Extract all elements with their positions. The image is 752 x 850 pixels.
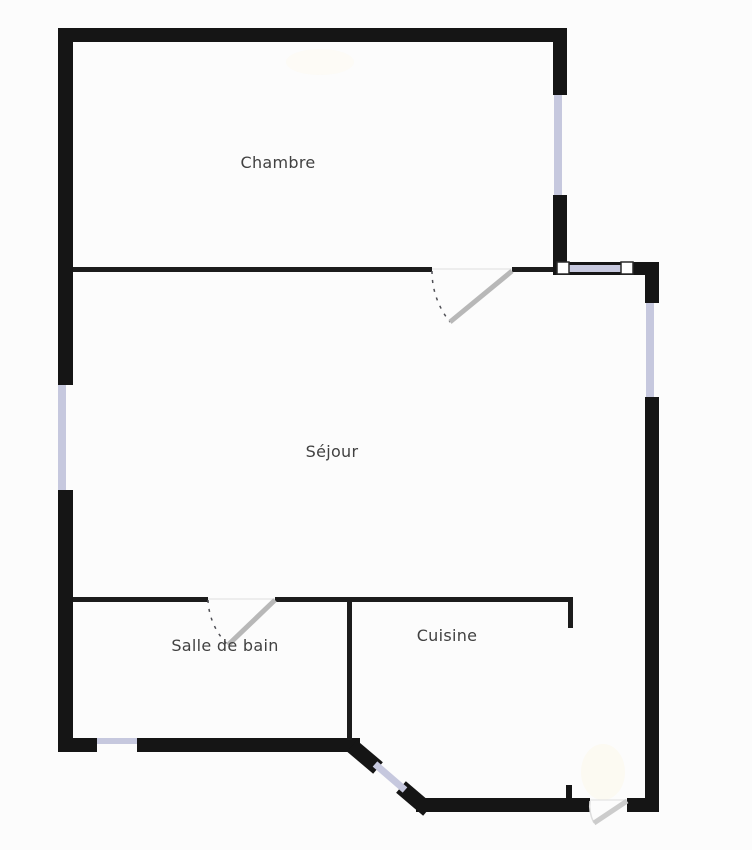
room-label-cuisine: Cuisine [417,626,478,645]
wall-left-upper [58,28,73,385]
wall-right-upper [645,262,659,303]
exterior-walls [58,28,659,812]
wall-bath-bottom-right [137,738,360,752]
door-entry [590,800,627,823]
room-label-salle-de-bain: Salle de bain [171,636,278,655]
window-chamfer [375,764,405,790]
wall-bath-cuisine-divider [347,597,352,740]
window-left [58,385,66,490]
door-swing-arc [590,801,594,823]
door-leaf [450,271,512,322]
room-label-sejour: Séjour [306,442,359,461]
wall-tick-entry [566,785,572,799]
wall-bath-bottom-left [58,738,97,752]
wall-chambre-right-upper [553,28,567,95]
wall-left-lower [58,490,73,752]
interior-walls [73,267,573,740]
room-label-chambre: Chambre [240,153,315,172]
wall-top [58,28,567,42]
wall-chamfer-upper [352,746,378,768]
scan-artifacts [286,49,625,800]
wall-partition-right [275,597,571,602]
smudge [286,49,354,75]
smudge [581,744,625,800]
floor-plan-canvas: Chambre Séjour Salle de bain Cuisine [0,0,752,850]
door-leaf [594,801,627,823]
window-sejour-top [569,265,627,272]
wall-cuisine-bottom-right [627,798,659,812]
wall-partition-return [568,597,573,628]
window-right [646,303,654,397]
wall-right-lower [645,397,659,812]
door-swing-arc [432,271,450,322]
wall-partition-left [73,597,208,602]
window-bath-bottom [97,738,137,744]
door-chambre [432,269,512,322]
floor-plan: Chambre Séjour Salle de bain Cuisine [0,0,752,850]
wall-cuisine-bottom-left [416,798,590,812]
wall-chambre-bottom-right [512,267,553,272]
room-labels: Chambre Séjour Salle de bain Cuisine [171,153,477,655]
window-cap-left [557,262,569,274]
window-cap-right [621,262,633,274]
window-chambre-right [554,95,562,195]
wall-chambre-bottom-left [73,267,432,272]
